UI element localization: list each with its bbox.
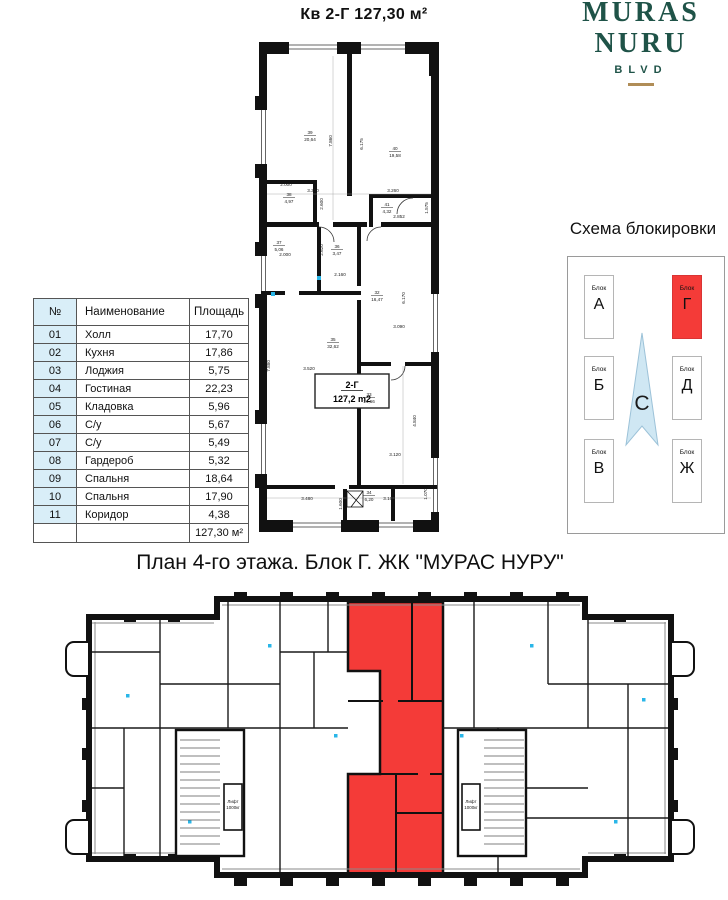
unit-label-box: 2-Г 127,2 m2 xyxy=(315,374,389,408)
plan-label: 39 xyxy=(307,130,313,135)
table-row: 02Кухня17,86 xyxy=(34,344,249,362)
plan-label: 7.860 xyxy=(328,135,333,147)
cell-name: С/у xyxy=(77,434,190,452)
cell-num: 05 xyxy=(34,398,77,416)
cell-name: Гардероб xyxy=(77,452,190,470)
plan-label: 4,32 xyxy=(383,209,392,214)
cell-name: С/у xyxy=(77,416,190,434)
plan-label: 35 xyxy=(330,337,336,342)
plan-label: 3.120 xyxy=(389,452,401,457)
plan-label: 32,62 xyxy=(327,344,339,349)
plan-label: 6.170 xyxy=(401,292,406,304)
table-row: 10Спальня17,90 xyxy=(34,488,249,506)
block-Д: БлокД xyxy=(672,356,702,420)
plan-label: 3,47 xyxy=(333,251,342,256)
logo-line-1: MURAS xyxy=(562,0,720,28)
block-caption: Блок xyxy=(585,449,613,456)
blocking-scheme-box: С БлокАБлокГБлокББлокДБлокВБлокЖ xyxy=(567,256,725,534)
block-caption: Блок xyxy=(673,285,701,292)
block-Б: БлокБ xyxy=(584,356,614,420)
table-row: 11Коридор4,38 xyxy=(34,506,249,524)
block-letter: Ж xyxy=(673,460,701,478)
plan-label: 3.520 xyxy=(303,366,315,371)
table-row: 01Холл17,70 xyxy=(34,326,249,344)
block-letter: А xyxy=(585,296,613,314)
plan-label: 33 xyxy=(366,392,372,397)
plan-label: 1.575 xyxy=(424,202,429,214)
plan-label: Лифт xyxy=(465,799,476,804)
cell-name: Спальня xyxy=(77,488,190,506)
plan-label: 3.260 xyxy=(387,188,399,193)
plan-label: 2.000 xyxy=(280,182,292,187)
cell-name: Кухня xyxy=(77,344,190,362)
table-row: 08Гардероб5,32 xyxy=(34,452,249,470)
brand-logo: MURAS NURU BLVD xyxy=(562,0,720,86)
cell-num: 11 xyxy=(34,506,77,524)
plan-label: 7.880 xyxy=(266,360,271,372)
block-letter: Д xyxy=(673,377,701,395)
plan-label: 14,66 xyxy=(363,399,375,404)
table-row: 04Гостиная22,23 xyxy=(34,380,249,398)
cell-num: 10 xyxy=(34,488,77,506)
cell-area: 17,90 xyxy=(190,488,249,506)
block-caption: Блок xyxy=(673,449,701,456)
block-Г: БлокГ xyxy=(672,275,702,339)
cell-area: 4,38 xyxy=(190,506,249,524)
cell-area: 5,96 xyxy=(190,398,249,416)
cell-num: 08 xyxy=(34,452,77,470)
logo-line-3: BLVD xyxy=(562,64,720,76)
block-caption: Блок xyxy=(673,366,701,373)
unit-label: 2-Г xyxy=(345,380,358,390)
plan-label: 3.480 xyxy=(301,496,313,501)
cell-num: 04 xyxy=(34,380,77,398)
plan-label: 3.090 xyxy=(393,324,405,329)
cell-area: 17,86 xyxy=(190,344,249,362)
shower-icon xyxy=(347,491,363,507)
plan-label: 2.160 xyxy=(334,272,346,277)
table-row: 05Кладовка5,96 xyxy=(34,398,249,416)
cell-num: 01 xyxy=(34,326,77,344)
plan-label: 1000кг xyxy=(464,805,478,810)
plan-label: 6.175 xyxy=(359,138,364,150)
block-letter: Г xyxy=(673,296,701,314)
cell-num: 09 xyxy=(34,470,77,488)
table-header-row: № Наименование Площадь xyxy=(34,299,249,326)
cell-area: 5,32 xyxy=(190,452,249,470)
block-Ж: БлокЖ xyxy=(672,439,702,503)
page: Кв 2-Г 127,30 м² MURAS NURU BLVD № Наиме… xyxy=(0,0,728,900)
plan-label: 2.000 xyxy=(279,252,291,257)
cell-name: Спальня xyxy=(77,470,190,488)
plan-label: 2.600 xyxy=(319,198,324,210)
plan-label: 6,20 xyxy=(365,497,374,502)
cell-name: Гостиная xyxy=(77,380,190,398)
cell-area: 18,64 xyxy=(190,470,249,488)
cell-name: Кладовка xyxy=(77,398,190,416)
floor-plan-svg: Лифт1000кгЛифт1000кг xyxy=(28,588,700,890)
cell-area: 5,75 xyxy=(190,362,249,380)
block-caption: Блок xyxy=(585,285,613,292)
header-name: Наименование xyxy=(77,299,190,326)
block-letter: В xyxy=(585,460,613,478)
compass-north-letter: С xyxy=(634,392,649,415)
block-letter: Б xyxy=(585,377,613,395)
plan-label: 38 xyxy=(286,192,292,197)
plan-label: 4.840 xyxy=(412,415,417,427)
table-row: 09Спальня18,64 xyxy=(34,470,249,488)
plan-label: 3.350 xyxy=(307,188,319,193)
plan-label: 20,64 xyxy=(304,137,316,142)
table-row: 07С/у5,49 xyxy=(34,434,249,452)
cell-name: Коридор xyxy=(77,506,190,524)
cell-area: 5,67 xyxy=(190,416,249,434)
cell-num: 06 xyxy=(34,416,77,434)
cell-area: 22,23 xyxy=(190,380,249,398)
plan-label: 37 xyxy=(276,240,282,245)
header-num: № xyxy=(34,299,77,326)
total-empty-num xyxy=(34,524,77,543)
plan-label: 3.160 xyxy=(383,496,395,501)
plan-label: 1000кг xyxy=(226,805,240,810)
table-row: 06С/у5,67 xyxy=(34,416,249,434)
plan-label: 40 xyxy=(392,146,398,151)
plan-label: 34 xyxy=(366,490,372,495)
cell-num: 02 xyxy=(34,344,77,362)
cell-area: 5,49 xyxy=(190,434,249,452)
plan-label: 19,58 xyxy=(389,153,401,158)
plan-label: 2.852 xyxy=(393,214,405,219)
table-row: 03Лоджия5,75 xyxy=(34,362,249,380)
blocking-scheme-title: Схема блокировки xyxy=(560,219,726,239)
plan-label: 1.600 xyxy=(338,498,343,510)
cell-num: 07 xyxy=(34,434,77,452)
plan-label: 1.070 xyxy=(423,488,428,500)
block-А: БлокА xyxy=(584,275,614,339)
header-area: Площадь xyxy=(190,299,249,326)
total-area: 127,30 м² xyxy=(190,524,249,543)
unit-interior-walls xyxy=(261,54,437,521)
logo-line-2: NURU xyxy=(562,28,720,59)
plan-label: Лифт xyxy=(227,799,238,804)
plan-label: 2.620 xyxy=(319,244,324,256)
plan-label: 32 xyxy=(374,290,380,295)
cell-num: 03 xyxy=(34,362,77,380)
unit-floor-plan: 2-Г 127,2 m2 3920,644019,58384,97414,323… xyxy=(253,36,445,540)
block-В: БлокВ xyxy=(584,439,614,503)
unit-door-arcs xyxy=(319,198,413,401)
plan-label: 41 xyxy=(384,202,390,207)
cell-name: Холл xyxy=(77,326,190,344)
plan-label: 4,97 xyxy=(285,199,294,204)
plan-label: 16,47 xyxy=(371,297,383,302)
room-area-table: № Наименование Площадь 01Холл17,7002Кухн… xyxy=(33,298,249,543)
plan-label: 36 xyxy=(334,244,340,249)
room-table-body: 01Холл17,7002Кухня17,8603Лоджия5,7504Гос… xyxy=(34,326,249,524)
cell-area: 17,70 xyxy=(190,326,249,344)
total-empty-name xyxy=(77,524,190,543)
cell-name: Лоджия xyxy=(77,362,190,380)
table-total-row: 127,30 м² xyxy=(34,524,249,543)
block-caption: Блок xyxy=(585,366,613,373)
floor-plan-title: План 4-го этажа. Блок Г. ЖК "МУРАС НУРУ" xyxy=(0,551,700,575)
logo-accent-bar xyxy=(628,83,654,86)
